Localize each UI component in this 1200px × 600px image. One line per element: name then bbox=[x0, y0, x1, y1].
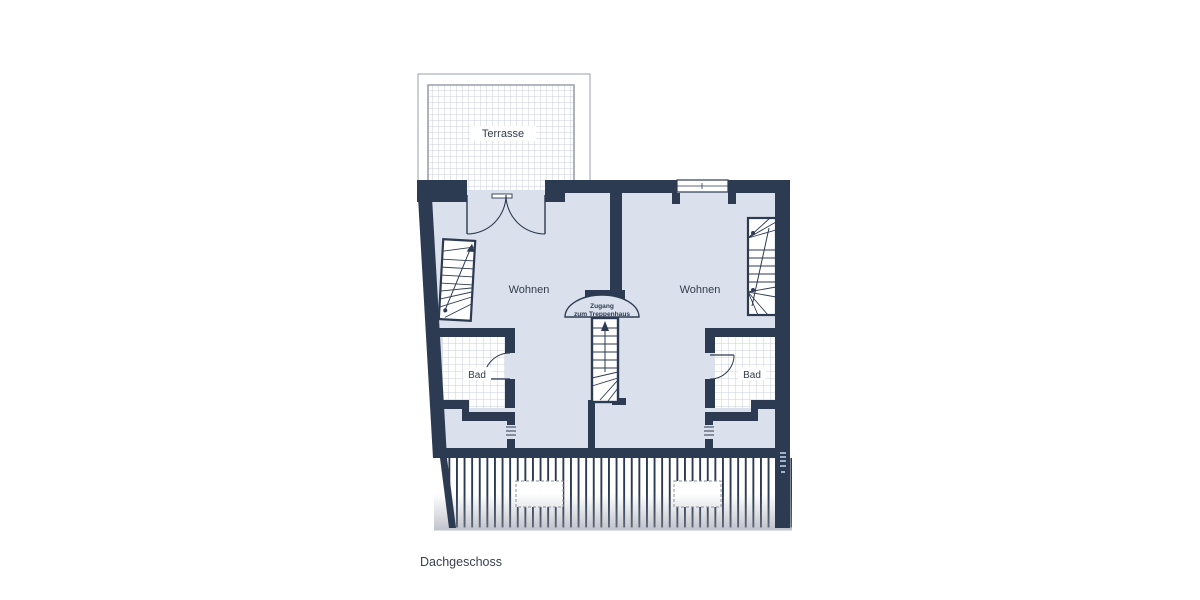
wall-segment bbox=[672, 193, 680, 204]
wall-segment bbox=[505, 379, 515, 408]
wall-segment bbox=[705, 412, 713, 425]
wall-segment bbox=[507, 412, 515, 425]
floor-plan-drawing: Terrasse bbox=[0, 0, 1200, 600]
wall-segment bbox=[434, 328, 515, 337]
terrace-label: Terrasse bbox=[482, 128, 524, 140]
stairs-right-dot-bottom bbox=[751, 288, 755, 292]
bath-left-label: Bad bbox=[468, 370, 486, 381]
roof-shadow-edge bbox=[434, 527, 792, 531]
window-icon bbox=[677, 180, 728, 192]
wall-segment bbox=[728, 193, 736, 204]
terrace: Terrasse bbox=[418, 74, 590, 195]
stairs-right-dot-top bbox=[751, 231, 755, 235]
wall-segment bbox=[610, 193, 622, 299]
stairs-left-icon bbox=[439, 239, 475, 321]
stair-access-line1: Zugang bbox=[590, 303, 614, 310]
living-right-label: Wohnen bbox=[680, 284, 721, 296]
wall-segment bbox=[433, 448, 790, 458]
roof-shadow bbox=[434, 494, 792, 530]
wall-segment bbox=[507, 439, 515, 451]
wall-segment bbox=[505, 337, 515, 353]
living-left-label: Wohnen bbox=[509, 284, 550, 296]
wall-segment bbox=[705, 439, 713, 451]
wall-segment bbox=[705, 379, 715, 408]
wall-segment bbox=[705, 337, 715, 353]
bath-right-label: Bad bbox=[743, 370, 761, 381]
wall-segment bbox=[588, 400, 595, 450]
floor-title: Dachgeschoss bbox=[420, 555, 502, 569]
wall-segment bbox=[455, 188, 467, 202]
roof-slope-area bbox=[434, 458, 792, 531]
wall-segment bbox=[545, 180, 565, 202]
wall-segment bbox=[775, 180, 790, 528]
stairs-right-icon bbox=[748, 218, 776, 315]
floor-plan-page: Terrasse bbox=[0, 0, 1200, 600]
wall-segment bbox=[705, 328, 786, 337]
